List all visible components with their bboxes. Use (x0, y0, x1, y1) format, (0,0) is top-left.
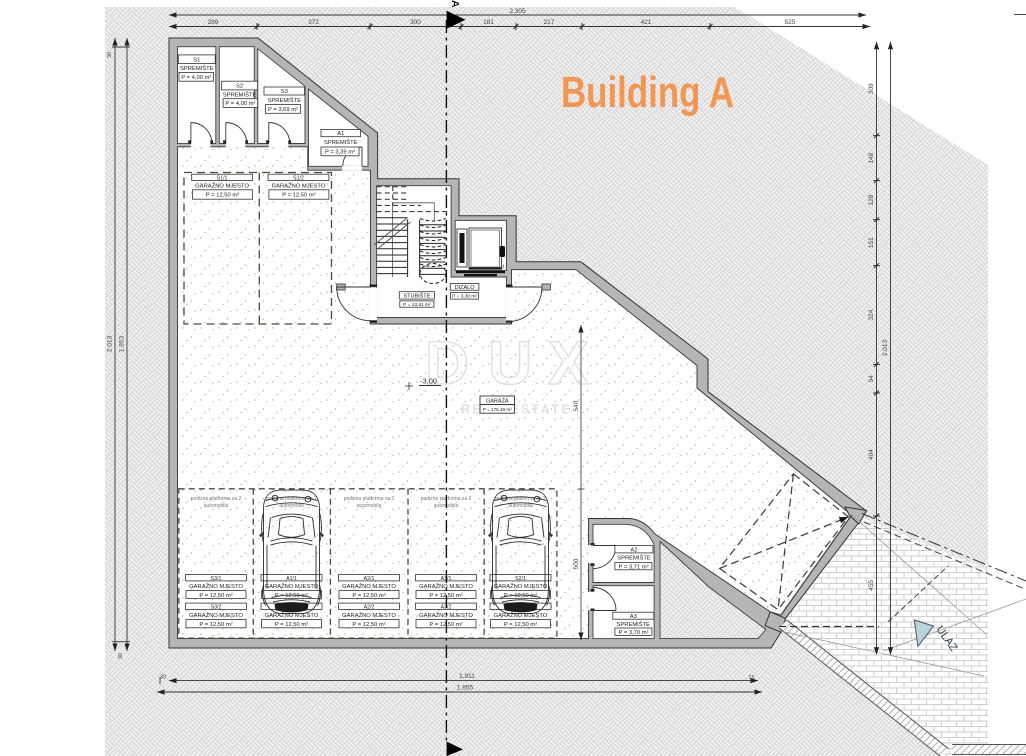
svg-text:P = 12,50 m²: P = 12,50 m² (282, 193, 315, 199)
svg-text:15: 15 (748, 675, 754, 681)
svg-text:289: 289 (208, 19, 219, 26)
svg-text:S3/1: S3/1 (211, 576, 222, 582)
svg-text:421: 421 (641, 19, 652, 26)
svg-text:X: X (548, 329, 589, 397)
svg-text:podizna platforma za 2: podizna platforma za 2 (191, 496, 242, 502)
svg-text:P = 3,39 m²: P = 3,39 m² (325, 150, 355, 156)
svg-text:GARAŽNO MJESTO: GARAŽNO MJESTO (189, 582, 243, 590)
svg-text:P = 3,69 m²: P = 3,69 m² (268, 107, 298, 113)
svg-text:S2/1: S2/1 (515, 576, 526, 582)
svg-text:SPREMIŠTE: SPREMIŠTE (180, 65, 214, 72)
svg-text:GARAŽA: GARAŽA (486, 397, 509, 405)
svg-text:540: 540 (573, 400, 580, 411)
svg-text:94: 94 (868, 375, 875, 383)
svg-text:1.955: 1.955 (457, 685, 474, 692)
svg-text:1.911: 1.911 (459, 673, 475, 680)
svg-text:S1: S1 (193, 57, 200, 63)
svg-text:GARAŽNO MJESTO: GARAŽNO MJESTO (195, 181, 249, 189)
svg-text:309: 309 (868, 83, 875, 94)
svg-text:STUBIŠTE: STUBIŠTE (403, 293, 430, 300)
svg-text:P = 3,70 m²: P = 3,70 m² (618, 630, 648, 636)
svg-text:SPREMIŠTE: SPREMIŠTE (324, 139, 358, 146)
svg-text:S1/2: S1/2 (293, 176, 304, 182)
svg-text:151: 151 (868, 237, 875, 248)
svg-text:181: 181 (483, 19, 494, 26)
svg-text:324: 324 (868, 309, 875, 320)
svg-text:GARAŽNO MJESTO: GARAŽNO MJESTO (342, 582, 396, 590)
svg-text:S3: S3 (281, 89, 288, 95)
svg-text:automobila: automobila (279, 503, 304, 509)
svg-text:2.013: 2.013 (882, 339, 889, 356)
svg-text:P = 12,50 m²: P = 12,50 m² (352, 593, 385, 599)
svg-text:GARAŽNO MJESTO: GARAŽNO MJESTO (265, 582, 319, 590)
svg-text:automobila: automobila (508, 503, 533, 509)
svg-text:525: 525 (785, 19, 796, 26)
svg-text:S3/2: S3/2 (211, 604, 222, 610)
svg-text:P = 176,48 m²: P = 176,48 m² (483, 407, 512, 412)
svg-text:P = 12,50 m²: P = 12,50 m² (199, 593, 232, 599)
svg-text:podizna platforma za 2: podizna platforma za 2 (344, 496, 395, 502)
svg-text:P = 12,50 m²: P = 12,50 m² (199, 622, 232, 628)
svg-text:P = 12,50 m²: P = 12,50 m² (504, 622, 537, 628)
svg-text:SPREMIŠTE: SPREMIŠTE (223, 91, 257, 98)
svg-text:SPREMIŠTE: SPREMIŠTE (617, 621, 651, 628)
svg-text:217: 217 (544, 19, 555, 26)
svg-text:DIZALO: DIZALO (455, 285, 476, 291)
svg-text:P = 12,50 m²: P = 12,50 m² (206, 193, 239, 199)
svg-text:Building A: Building A (561, 68, 734, 117)
svg-text:500: 500 (573, 558, 580, 569)
svg-text:automobila: automobila (204, 503, 229, 509)
svg-text:A2/2: A2/2 (364, 604, 375, 610)
svg-text:SPREMIŠTE: SPREMIŠTE (268, 97, 302, 104)
svg-text:455: 455 (868, 579, 875, 590)
svg-text:A2: A2 (630, 548, 637, 554)
svg-text:A1: A1 (337, 131, 344, 137)
svg-text:372: 372 (308, 19, 319, 26)
svg-text:A1/1: A1/1 (286, 576, 297, 582)
svg-text:A3: A3 (630, 614, 637, 620)
svg-text:30: 30 (118, 653, 124, 659)
svg-text:S2: S2 (236, 84, 243, 90)
svg-text:2.305: 2.305 (509, 8, 526, 15)
svg-text:2.013: 2.013 (107, 335, 114, 352)
svg-text:GARAŽNO MJESTO: GARAŽNO MJESTO (494, 582, 548, 590)
svg-text:S1/1: S1/1 (217, 176, 228, 182)
svg-text:SPREMIŠTE: SPREMIŠTE (617, 555, 651, 562)
svg-text:A2/1: A2/1 (364, 576, 375, 582)
svg-text:P = 4,00 m²: P = 4,00 m² (225, 101, 255, 107)
svg-text:-3,00: -3,00 (420, 377, 437, 386)
svg-text:GARAŽNO MJESTO: GARAŽNO MJESTO (342, 611, 396, 619)
svg-text:d: d (501, 265, 504, 271)
svg-text:30: 30 (107, 52, 113, 58)
svg-text:P = 12,50 m²: P = 12,50 m² (352, 622, 385, 628)
svg-text:P = 13,91 m²: P = 13,91 m² (403, 302, 431, 308)
svg-text:404: 404 (868, 449, 875, 460)
svg-text:30: 30 (160, 674, 166, 680)
svg-text:automobila: automobila (357, 503, 382, 509)
svg-text:P = 4,00 m²: P = 4,00 m² (181, 75, 211, 81)
svg-text:300: 300 (410, 19, 421, 26)
svg-text:P = 3,30 m²: P = 3,30 m² (452, 294, 477, 300)
svg-text:P = 12,50 m²: P = 12,50 m² (275, 622, 308, 628)
svg-text:P = 3,71 m²: P = 3,71 m² (618, 565, 648, 571)
svg-text:REAL ESTATE: REAL ESTATE (461, 403, 572, 417)
svg-text:GARAŽNO MJESTO: GARAŽNO MJESTO (272, 181, 326, 189)
svg-text:128: 128 (868, 194, 875, 205)
svg-text:1.953: 1.953 (119, 335, 126, 352)
svg-text:A: A (449, 0, 461, 8)
svg-text:U: U (488, 329, 532, 397)
svg-text:GARAŽNO MJESTO: GARAŽNO MJESTO (189, 611, 243, 619)
svg-text:148: 148 (868, 152, 875, 163)
